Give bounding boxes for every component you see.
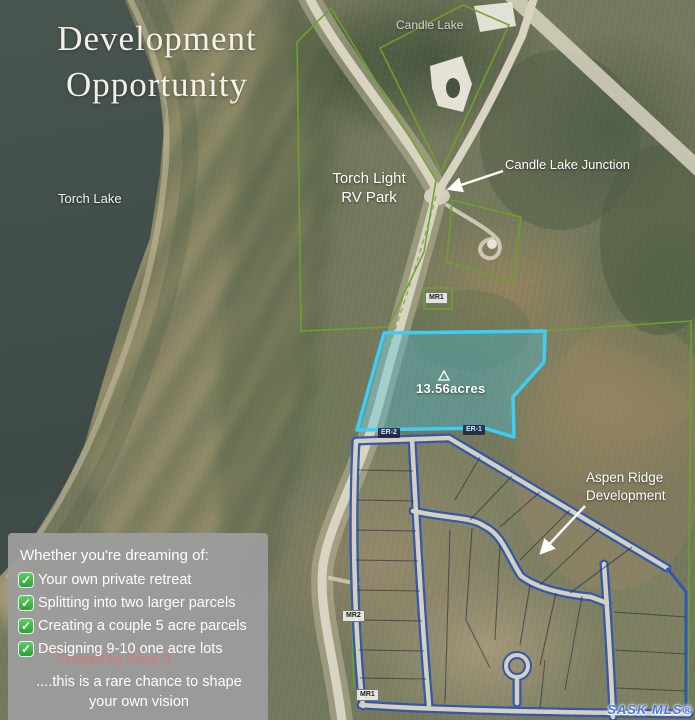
listing-flyer: Development Opportunity Candle Lake Cand…: [0, 0, 695, 720]
info-bullet: ✓ Splitting into two larger parcels: [18, 595, 260, 611]
info-bullet-text: Creating a couple 5 acre parcels: [38, 618, 247, 634]
acreage-label: 13.56acres: [416, 381, 486, 396]
flyer-title-line2: Opportunity: [22, 62, 292, 108]
reserve-chip-er1: ER-1: [463, 425, 485, 435]
driveway-loop: [447, 205, 500, 258]
reserve-chip-mr1: MR1: [425, 292, 448, 304]
creator-watermark: Created by Paint S: [56, 651, 171, 666]
aspen-ridge-label-line1: Aspen Ridge: [586, 469, 676, 487]
torch-lake-label: Torch Lake: [58, 191, 122, 206]
check-icon: ✓: [18, 595, 34, 611]
aspen-ridge-label-line2: Development: [586, 487, 676, 505]
info-footer: ....this is a rare chance to shape your …: [18, 673, 260, 712]
reserve-chip-er2: ER-2: [378, 428, 400, 438]
info-bullet: ✓ Your own private retreat: [18, 572, 260, 588]
marketing-info-box: Whether you're dreaming of: ✓ Your own p…: [8, 533, 268, 720]
building: [487, 239, 497, 249]
info-footer-line1: ....this is a rare chance to shape: [18, 673, 260, 693]
candle-lake-label: Candle Lake: [396, 18, 463, 32]
candle-lake-junction-label: Candle Lake Junction: [505, 157, 630, 172]
mls-watermark: SASK MLS®: [607, 702, 693, 717]
reserve-chip-mr1-lower: MR1: [356, 689, 379, 701]
info-bullet-text: Splitting into two larger parcels: [38, 595, 235, 611]
check-icon: ✓: [18, 618, 34, 634]
flyer-title-line1: Development: [22, 16, 292, 62]
building: [474, 2, 516, 32]
info-bullet: ✓ Creating a couple 5 acre parcels: [18, 618, 260, 634]
info-heading: Whether you're dreaming of:: [20, 547, 260, 564]
reserve-chip-mr2: MR2: [342, 610, 365, 622]
rv-park-label-line1: Torch Light: [318, 170, 420, 189]
info-bullet-text: Your own private retreat: [38, 572, 191, 588]
aspen-ridge-label: Aspen Ridge Development: [586, 469, 676, 504]
rv-park-label: Torch Light RV Park: [318, 170, 420, 208]
check-icon: ✓: [18, 572, 34, 588]
info-footer-line2: your own vision: [18, 693, 260, 713]
rv-park-label-line2: RV Park: [318, 189, 420, 208]
junction-pad: [424, 187, 450, 205]
check-icon: ✓: [18, 641, 34, 657]
flyer-title: Development Opportunity: [22, 16, 292, 108]
